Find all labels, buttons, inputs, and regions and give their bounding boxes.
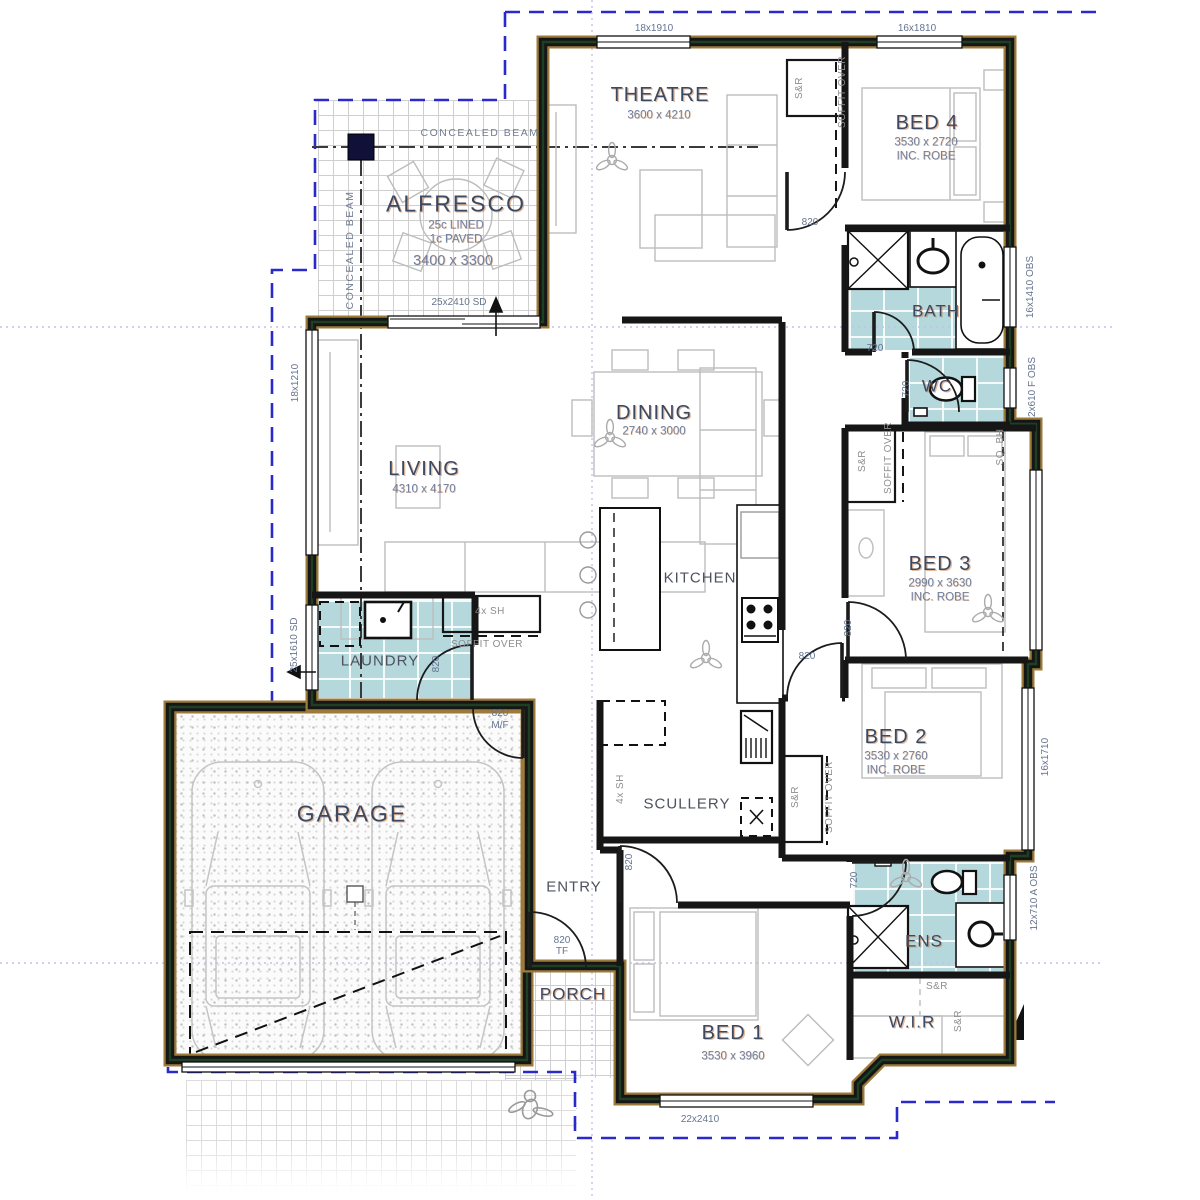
shelf-label: 4x SH [475,607,505,617]
door-label: 820 [802,218,819,228]
window-label: 22x2410 [681,1115,719,1125]
room-label-bed2: BED 2 [865,727,928,747]
dim-alfresco: 3400 x 3300 [413,254,493,269]
room-label-porch: PORCH [540,986,606,1003]
door-label: 820 [844,620,854,637]
room-label-ens: ENS [905,933,943,950]
window-label: 16x1410 OBS [1026,256,1036,318]
door-label: 820 [492,709,509,719]
window-label: 25x1610 SD [290,617,300,672]
window-label: 16x1810 [898,24,936,34]
note-bed3-robe: INC. ROBE [911,592,970,604]
dim-living: 4310 x 4170 [392,484,455,496]
window-label: 12x710 A OBS [1030,865,1040,930]
room-label-wc: WC [922,378,952,395]
room-label-living: LIVING [388,459,460,479]
beam-label: CONCEALED BEAM [420,128,539,139]
room-label-bath: BATH [912,303,960,320]
closet-label: S&R [791,786,801,808]
window-label: 2x610 F OBS [1028,357,1038,417]
room-label-garage: GARAGE [297,803,407,826]
room-label-bed4: BED 4 [896,113,959,133]
window-label: 18x1910 [635,24,673,34]
room-label-entry: ENTRY [546,880,602,895]
door-label: 720 [902,381,912,398]
dim-dining: 2740 x 3000 [622,426,685,438]
room-label-bed3: BED 3 [909,554,972,574]
room-label-scullery: SCULLERY [644,797,731,812]
note-alfresco-paved: 1c PAVED [430,234,483,246]
dim-bed4: 3530 x 2720 [894,137,957,149]
dim-bed2: 3530 x 2760 [864,751,927,763]
closet-label: S&R [858,450,868,472]
dim-theatre: 3600 x 4210 [627,110,690,122]
closet-label: S&R [954,1010,964,1032]
door-label: 720 [850,872,860,889]
door-label: 820 [625,854,635,871]
room-label-bed1: BED 1 [702,1023,765,1043]
beam-label: CONCEALED BEAM [345,190,356,309]
door-label: 820 [799,652,816,662]
soffit-label: SOFFIT OVER [884,422,894,494]
room-label-alfresco: ALFRESCO [386,193,526,216]
door-label: 820 [432,656,442,673]
shelf-label: 4x SH [616,774,626,804]
room-label-wir: W.I.R [889,1014,936,1031]
room-label-laundry: LAUNDRY [341,654,419,669]
closet-label: S&R [795,77,805,99]
window-label: 18x1210 [291,364,301,402]
window-label: 25x2410 SD [431,298,486,308]
room-label-kitchen: KITCHEN [664,571,737,586]
note-bed2-robe: INC. ROBE [867,765,926,777]
bulkhead-label: SQ. BH [996,429,1006,466]
door-label: M/F [491,721,508,731]
floor-plan: THEATRE3600 x 4210BED 43530 x 2720INC. R… [0,0,1200,1200]
room-label-theatre: THEATRE [611,85,710,105]
door-label: TF [556,947,568,957]
plan-labels: THEATRE3600 x 4210BED 43530 x 2720INC. R… [0,0,1200,1200]
door-label: 820 [554,936,571,946]
room-label-dining: DINING [616,403,692,423]
dim-bed1: 3530 x 3960 [701,1051,764,1063]
closet-label: S&R [926,982,948,992]
note-bed4-robe: INC. ROBE [897,151,956,163]
door-label: 720 [867,344,884,354]
soffit-label: SOFFIT OVER [825,761,835,833]
soffit-label: SOFFIT OVER [451,640,523,650]
soffit-label: SOFFIT OVER [838,56,848,128]
window-label: 16x1710 [1041,738,1051,776]
note-alfresco-lined: 25c LINED [428,220,484,232]
dim-bed3: 2990 x 3630 [908,578,971,590]
